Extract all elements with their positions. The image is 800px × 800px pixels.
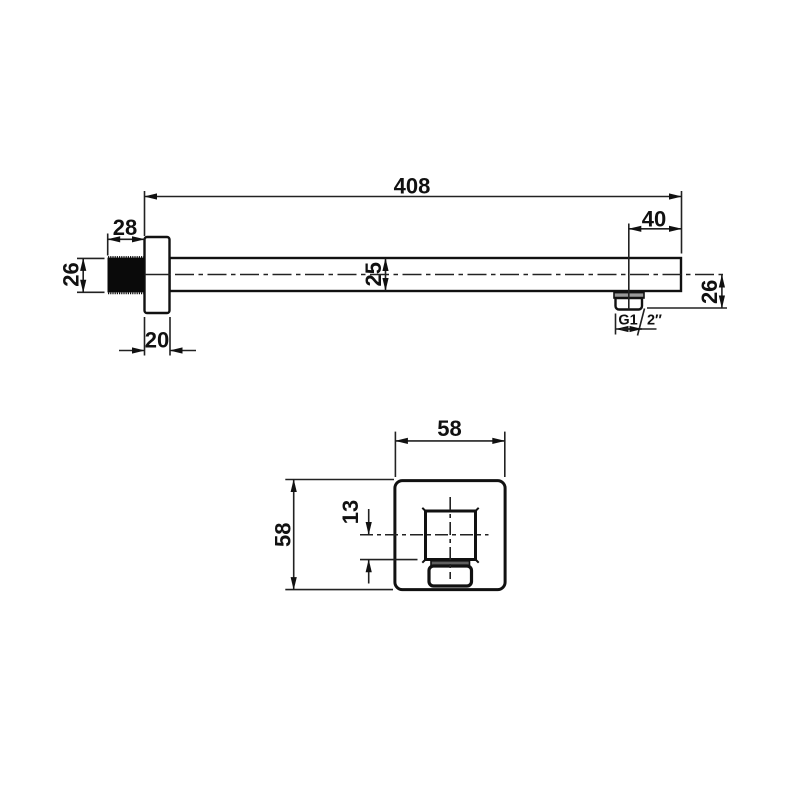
svg-text:408: 408 — [394, 174, 431, 199]
svg-text:26: 26 — [59, 262, 84, 286]
svg-text:2″: 2″ — [647, 313, 662, 329]
svg-text:25: 25 — [361, 262, 386, 286]
svg-text:20: 20 — [145, 328, 169, 353]
svg-text:28: 28 — [113, 215, 137, 240]
svg-text:40: 40 — [642, 207, 666, 232]
svg-text:26: 26 — [697, 280, 722, 304]
svg-text:58: 58 — [437, 416, 461, 441]
svg-text:13: 13 — [338, 500, 363, 524]
svg-text:G1: G1 — [618, 313, 637, 329]
svg-text:58: 58 — [271, 523, 296, 547]
